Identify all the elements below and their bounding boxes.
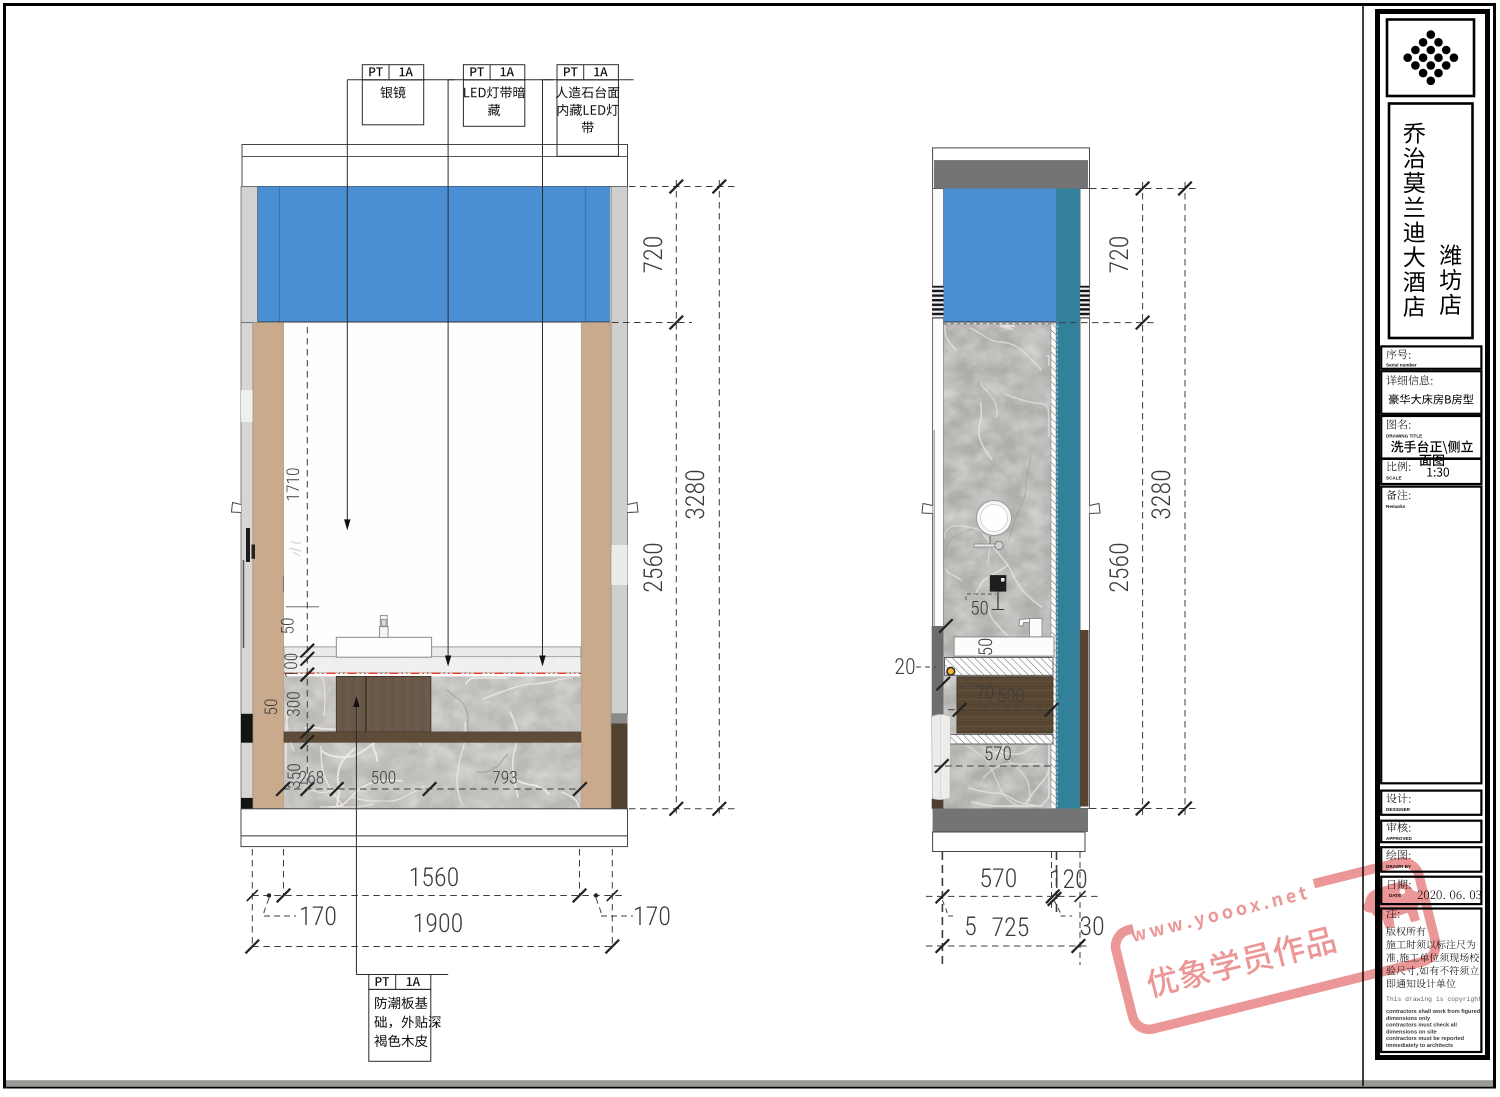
svg-text:immediately to architects: immediately to architects (1386, 1043, 1453, 1049)
svg-text:DRAWING TITLE: DRAWING TITLE (1386, 434, 1422, 439)
svg-text:SCALE: SCALE (1386, 476, 1402, 481)
svg-text:contractors must check all: contractors must check all (1386, 1023, 1457, 1029)
svg-text:APPROVED: APPROVED (1386, 836, 1412, 841)
svg-text:This drawing is copyright: This drawing is copyright (1386, 996, 1482, 1003)
svg-text:contractors shall work from fi: contractors shall work from figured (1386, 1009, 1481, 1015)
svg-text:dimensions on site: dimensions on site (1386, 1029, 1437, 1035)
svg-text:DESIGNER: DESIGNER (1386, 807, 1411, 812)
svg-text:contractors must be reported: contractors must be reported (1386, 1036, 1465, 1042)
svg-text:Serial number: Serial number (1386, 363, 1417, 368)
svg-text:dimensions only: dimensions only (1386, 1016, 1431, 1022)
svg-text:Remarks: Remarks (1386, 504, 1406, 509)
